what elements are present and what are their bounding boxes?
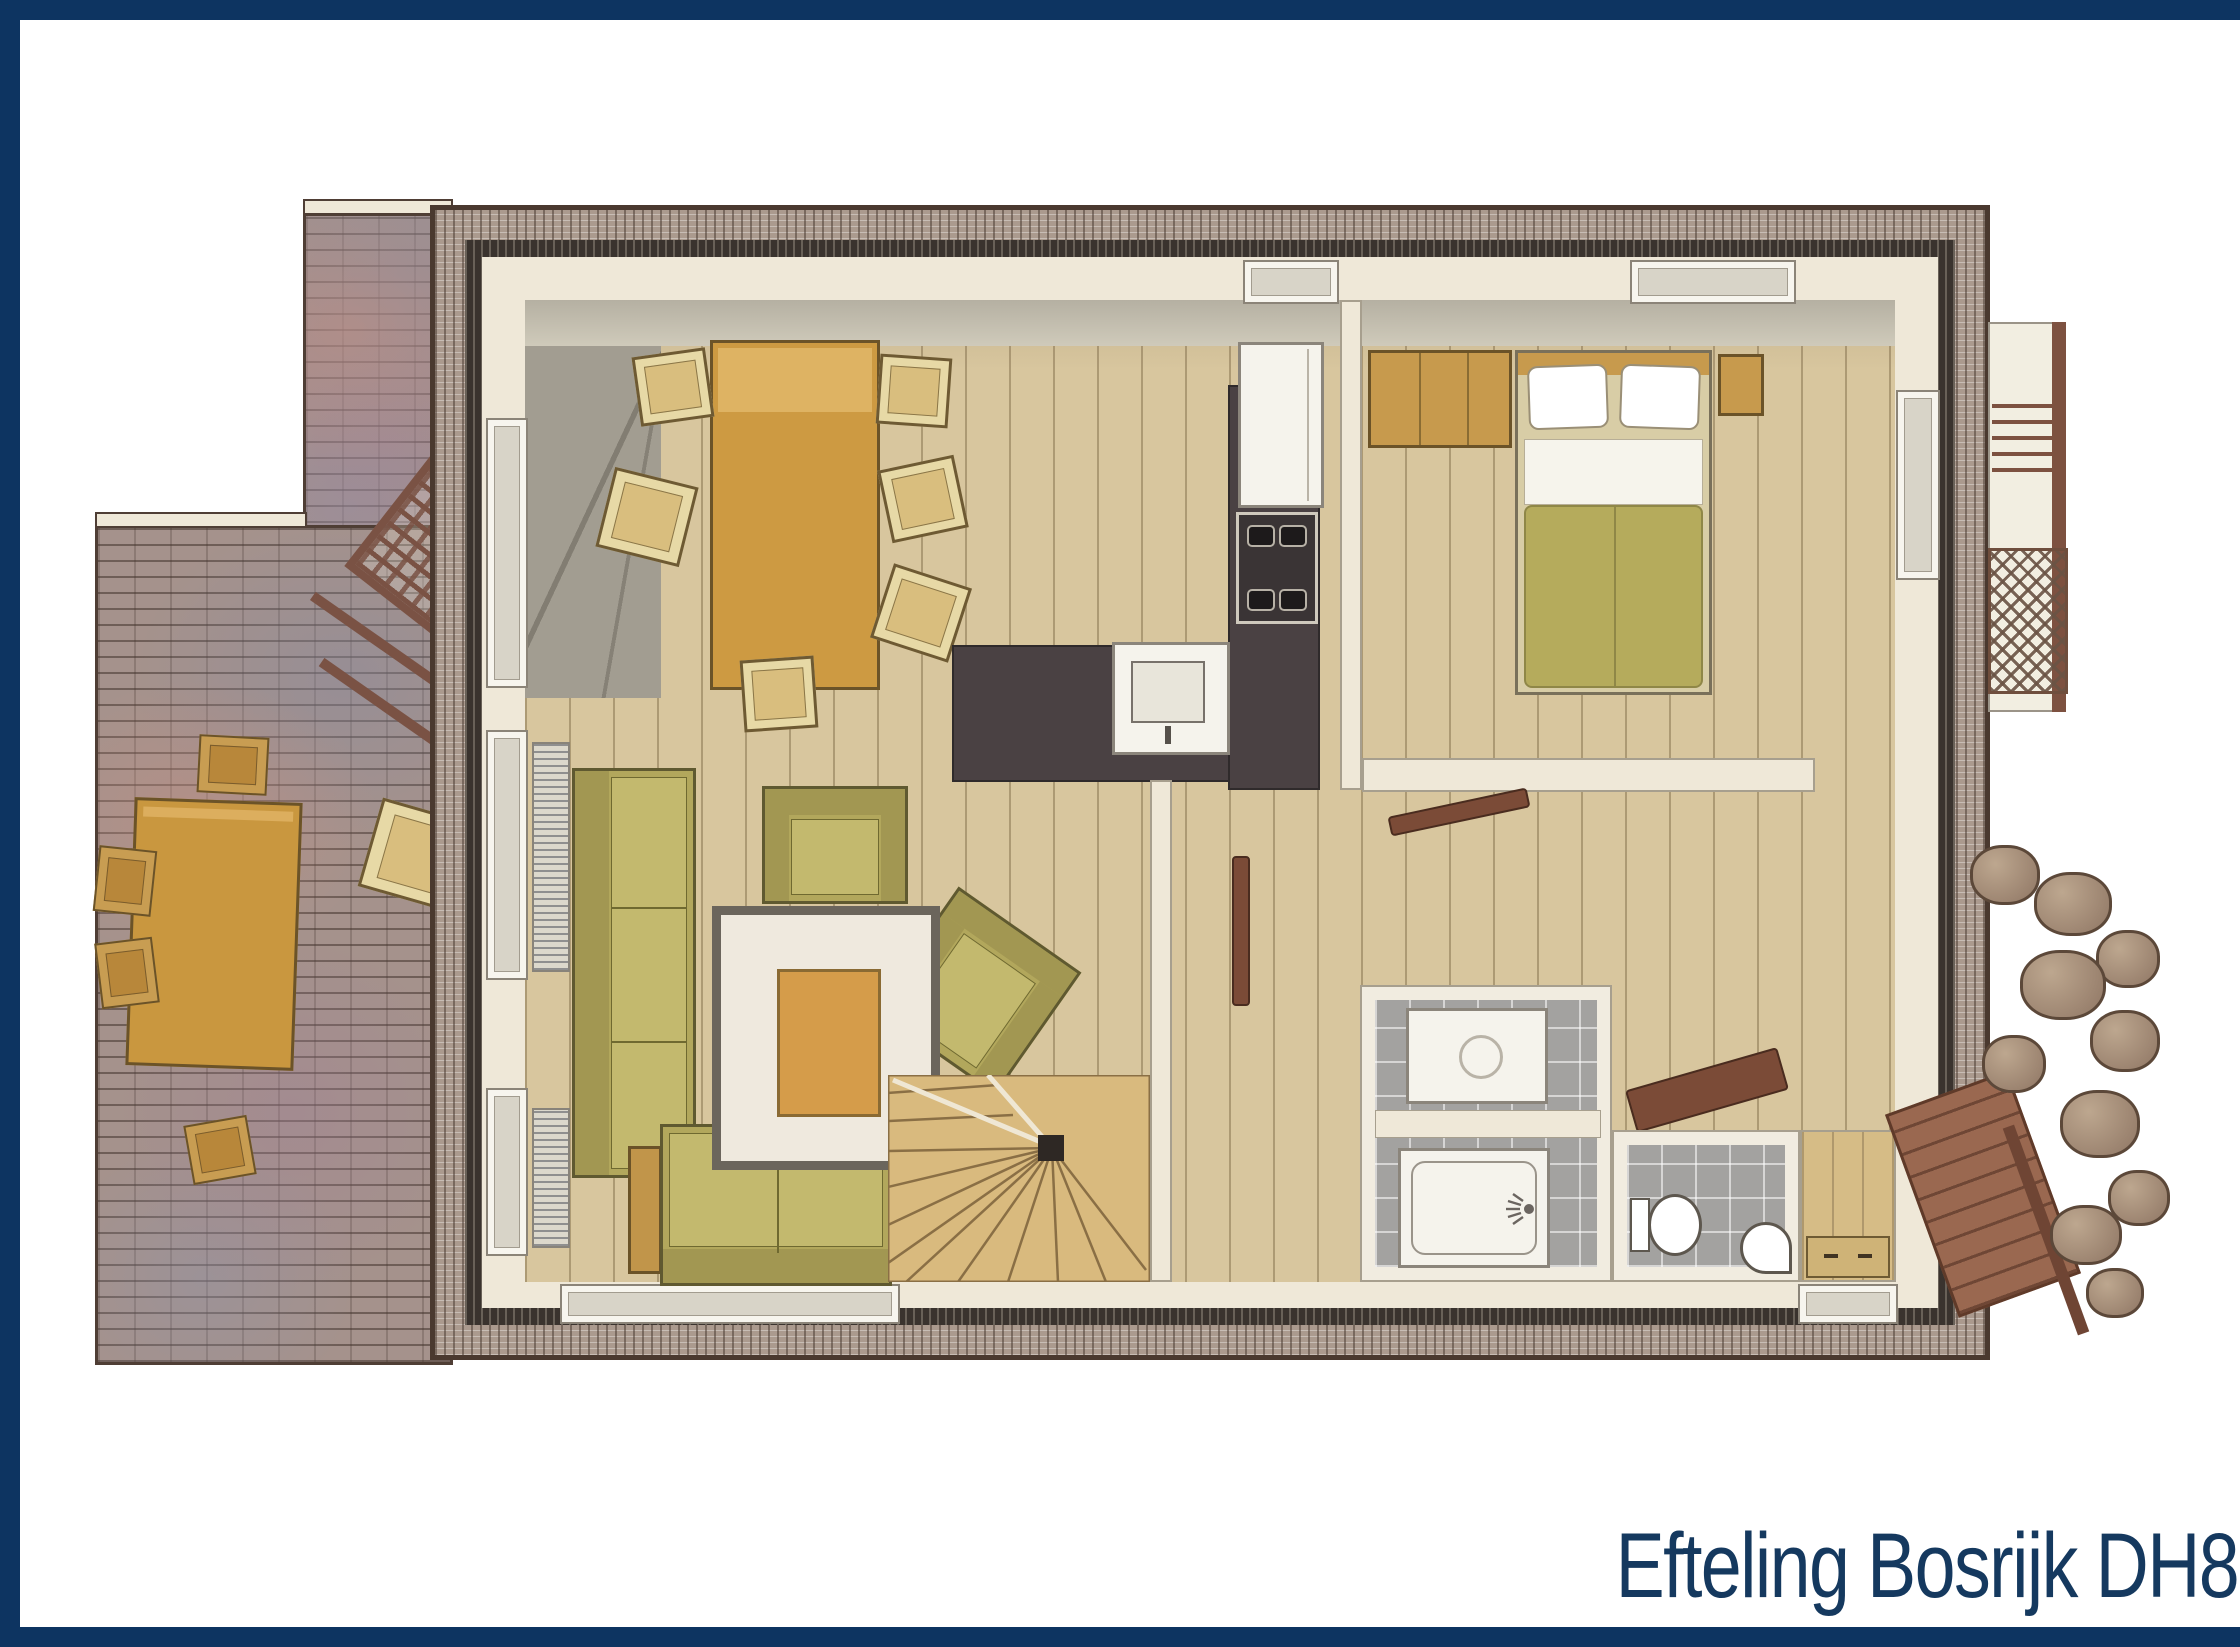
duvet-split bbox=[1614, 507, 1616, 686]
wall-bedroom-south bbox=[1362, 758, 1815, 792]
sink-faucet bbox=[1165, 726, 1171, 744]
sofa-back bbox=[575, 771, 609, 1175]
pillow bbox=[1619, 364, 1701, 431]
wall-kitchen-bedroom bbox=[1340, 300, 1362, 790]
dining-chair bbox=[631, 347, 714, 427]
dining-chair bbox=[876, 354, 953, 429]
coat-rack bbox=[1232, 856, 1250, 1006]
entrance-nook bbox=[1800, 1130, 1896, 1282]
armchair-seat bbox=[791, 819, 879, 895]
burner bbox=[1247, 525, 1275, 547]
rock bbox=[1982, 1035, 2046, 1093]
window-west bbox=[486, 1088, 528, 1256]
sofa-back bbox=[663, 1249, 889, 1283]
sofa-cushion-line bbox=[611, 1041, 687, 1043]
terrace-chair bbox=[94, 937, 160, 1010]
coffee-table bbox=[777, 969, 881, 1117]
fridge-door-line bbox=[1307, 349, 1309, 501]
double-bed bbox=[1515, 350, 1712, 695]
sofa-cushion-line bbox=[611, 907, 687, 909]
terrace-table bbox=[125, 797, 302, 1071]
staircase bbox=[888, 1075, 1150, 1282]
nightstand bbox=[1718, 354, 1764, 416]
stove bbox=[1236, 512, 1318, 624]
terrace-wall-cap-left bbox=[95, 512, 307, 528]
toilet-room bbox=[1612, 1130, 1800, 1282]
burner bbox=[1247, 589, 1275, 611]
burner bbox=[1279, 525, 1307, 547]
pillow bbox=[1527, 364, 1609, 431]
door-handle bbox=[1824, 1254, 1838, 1258]
wardrobe-divider bbox=[1419, 353, 1421, 445]
floor-plan-image: Efteling Bosrijk DH8 bbox=[0, 0, 2240, 1647]
corner-sink bbox=[1740, 1222, 1792, 1274]
bed-duvet bbox=[1524, 505, 1703, 688]
dining-table bbox=[710, 340, 880, 690]
window-east-bedroom bbox=[1896, 390, 1940, 580]
radiator bbox=[532, 1108, 570, 1248]
rock bbox=[1970, 845, 2040, 905]
shower-tray bbox=[1398, 1148, 1550, 1268]
sofa-seat bbox=[611, 777, 687, 1169]
window-south-living bbox=[560, 1284, 900, 1324]
front-door bbox=[1806, 1236, 1890, 1278]
sofa-long bbox=[572, 768, 696, 1178]
rock bbox=[2060, 1090, 2140, 1158]
washing-machine bbox=[1406, 1008, 1548, 1104]
wardrobe bbox=[1368, 350, 1512, 448]
armchair-back bbox=[765, 789, 905, 815]
balcony-ladder-rungs bbox=[1992, 392, 2052, 472]
entrance-threshold bbox=[1798, 1284, 1898, 1324]
radiator bbox=[532, 742, 570, 972]
armchair-arm bbox=[765, 815, 789, 901]
window-west bbox=[486, 418, 528, 688]
bathroom bbox=[1360, 985, 1612, 1282]
balcony-lattice-panel bbox=[1988, 548, 2068, 694]
dining-chair bbox=[877, 455, 969, 544]
toilet-tank bbox=[1630, 1198, 1650, 1252]
fridge bbox=[1238, 342, 1324, 508]
plan-title: Efteling Bosrijk DH8 bbox=[1616, 1514, 2238, 1619]
kitchen-sink bbox=[1112, 642, 1230, 755]
side-table bbox=[628, 1146, 662, 1274]
rock bbox=[2034, 872, 2112, 936]
bathroom-divider-wall bbox=[1375, 1110, 1601, 1138]
armchair-arm bbox=[881, 815, 905, 901]
terrace-chair bbox=[93, 845, 158, 917]
rock bbox=[2090, 1010, 2160, 1072]
bed-sheet-fold bbox=[1524, 439, 1703, 505]
terrace-table-top-edge bbox=[143, 806, 293, 821]
window-west bbox=[486, 730, 528, 980]
door-handle bbox=[1858, 1254, 1872, 1258]
rock bbox=[2086, 1268, 2144, 1318]
wall-living-hall bbox=[1150, 780, 1172, 1282]
window-north-kitchen bbox=[1243, 260, 1339, 304]
shower-head-icon bbox=[1501, 1189, 1541, 1229]
terrace-chair bbox=[183, 1115, 256, 1185]
armchair bbox=[762, 786, 908, 904]
dining-chair bbox=[740, 656, 819, 733]
sink-basin bbox=[1131, 661, 1205, 723]
window-north-bedroom bbox=[1630, 260, 1796, 304]
terrace-chair bbox=[197, 734, 270, 796]
rock bbox=[2020, 950, 2106, 1020]
toilet-bowl bbox=[1648, 1194, 1702, 1256]
wardrobe-divider bbox=[1467, 353, 1469, 445]
washing-machine-door bbox=[1459, 1035, 1503, 1079]
burner bbox=[1279, 589, 1307, 611]
dining-table-sheen bbox=[718, 348, 872, 412]
rock bbox=[2050, 1205, 2122, 1265]
